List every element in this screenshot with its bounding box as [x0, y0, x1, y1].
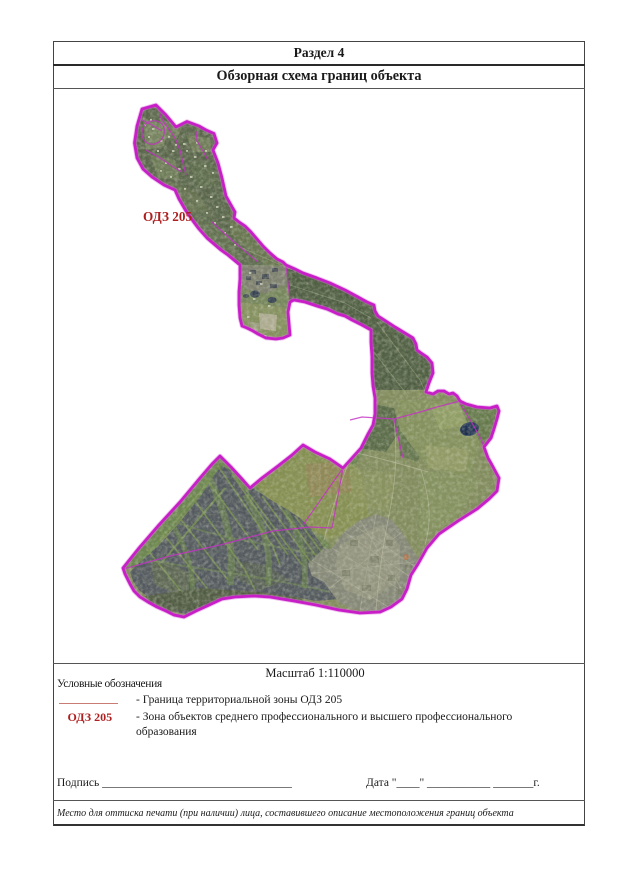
svg-text:ОДЗ 205: ОДЗ 205 — [143, 209, 192, 224]
